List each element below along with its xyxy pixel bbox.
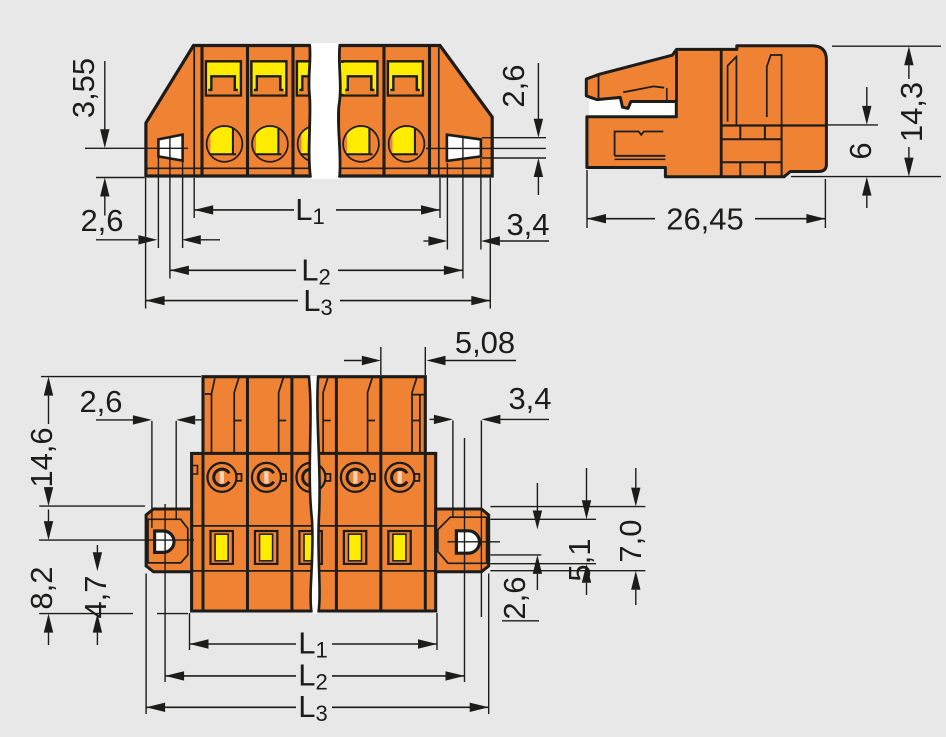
svg-text:14,3: 14,3 — [894, 82, 929, 142]
svg-text:2,6: 2,6 — [80, 203, 123, 238]
svg-text:14,6: 14,6 — [24, 427, 59, 487]
svg-text:2,6: 2,6 — [496, 64, 531, 107]
svg-text:5,08: 5,08 — [455, 325, 515, 360]
svg-text:3,55: 3,55 — [66, 58, 101, 118]
svg-text:2,6: 2,6 — [79, 384, 122, 419]
svg-text:3,4: 3,4 — [508, 381, 551, 416]
svg-text:5,1: 5,1 — [562, 538, 597, 581]
svg-text:6: 6 — [843, 142, 878, 159]
svg-text:8,2: 8,2 — [24, 566, 59, 609]
svg-text:4,7: 4,7 — [78, 575, 113, 618]
svg-text:7,0: 7,0 — [613, 519, 648, 562]
svg-text:3,4: 3,4 — [506, 207, 549, 242]
svg-text:2,6: 2,6 — [497, 576, 532, 619]
svg-text:26,45: 26,45 — [666, 202, 744, 237]
